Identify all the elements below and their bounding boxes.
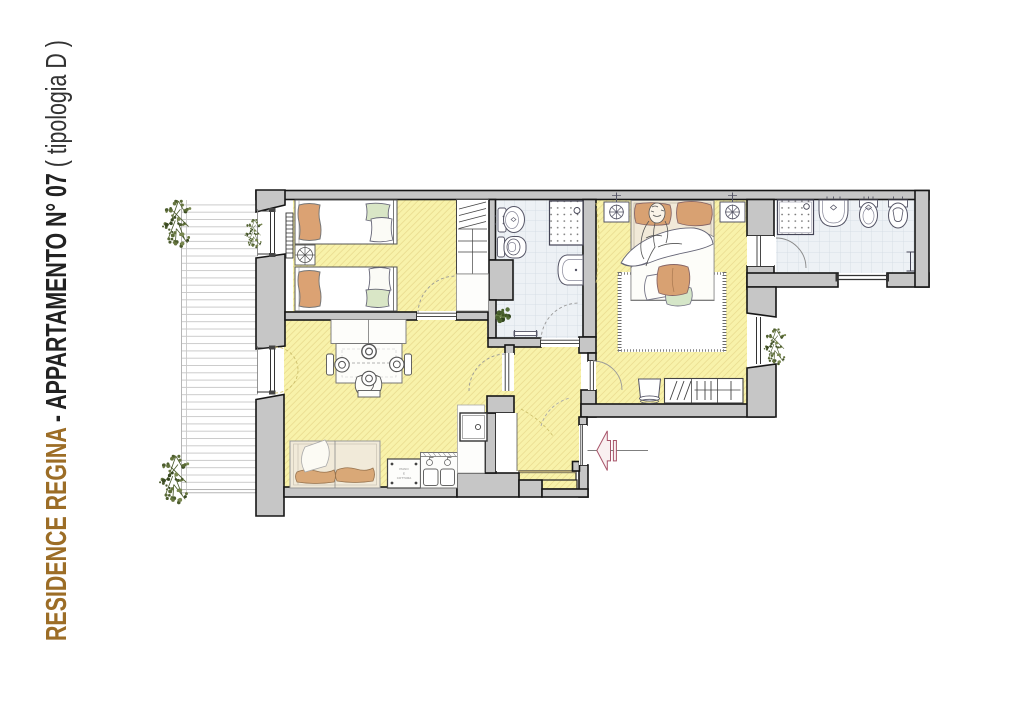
- svg-text:COTTURA: COTTURA: [397, 476, 412, 480]
- svg-text:PIANO: PIANO: [399, 467, 409, 471]
- svg-text:E: E: [403, 472, 405, 476]
